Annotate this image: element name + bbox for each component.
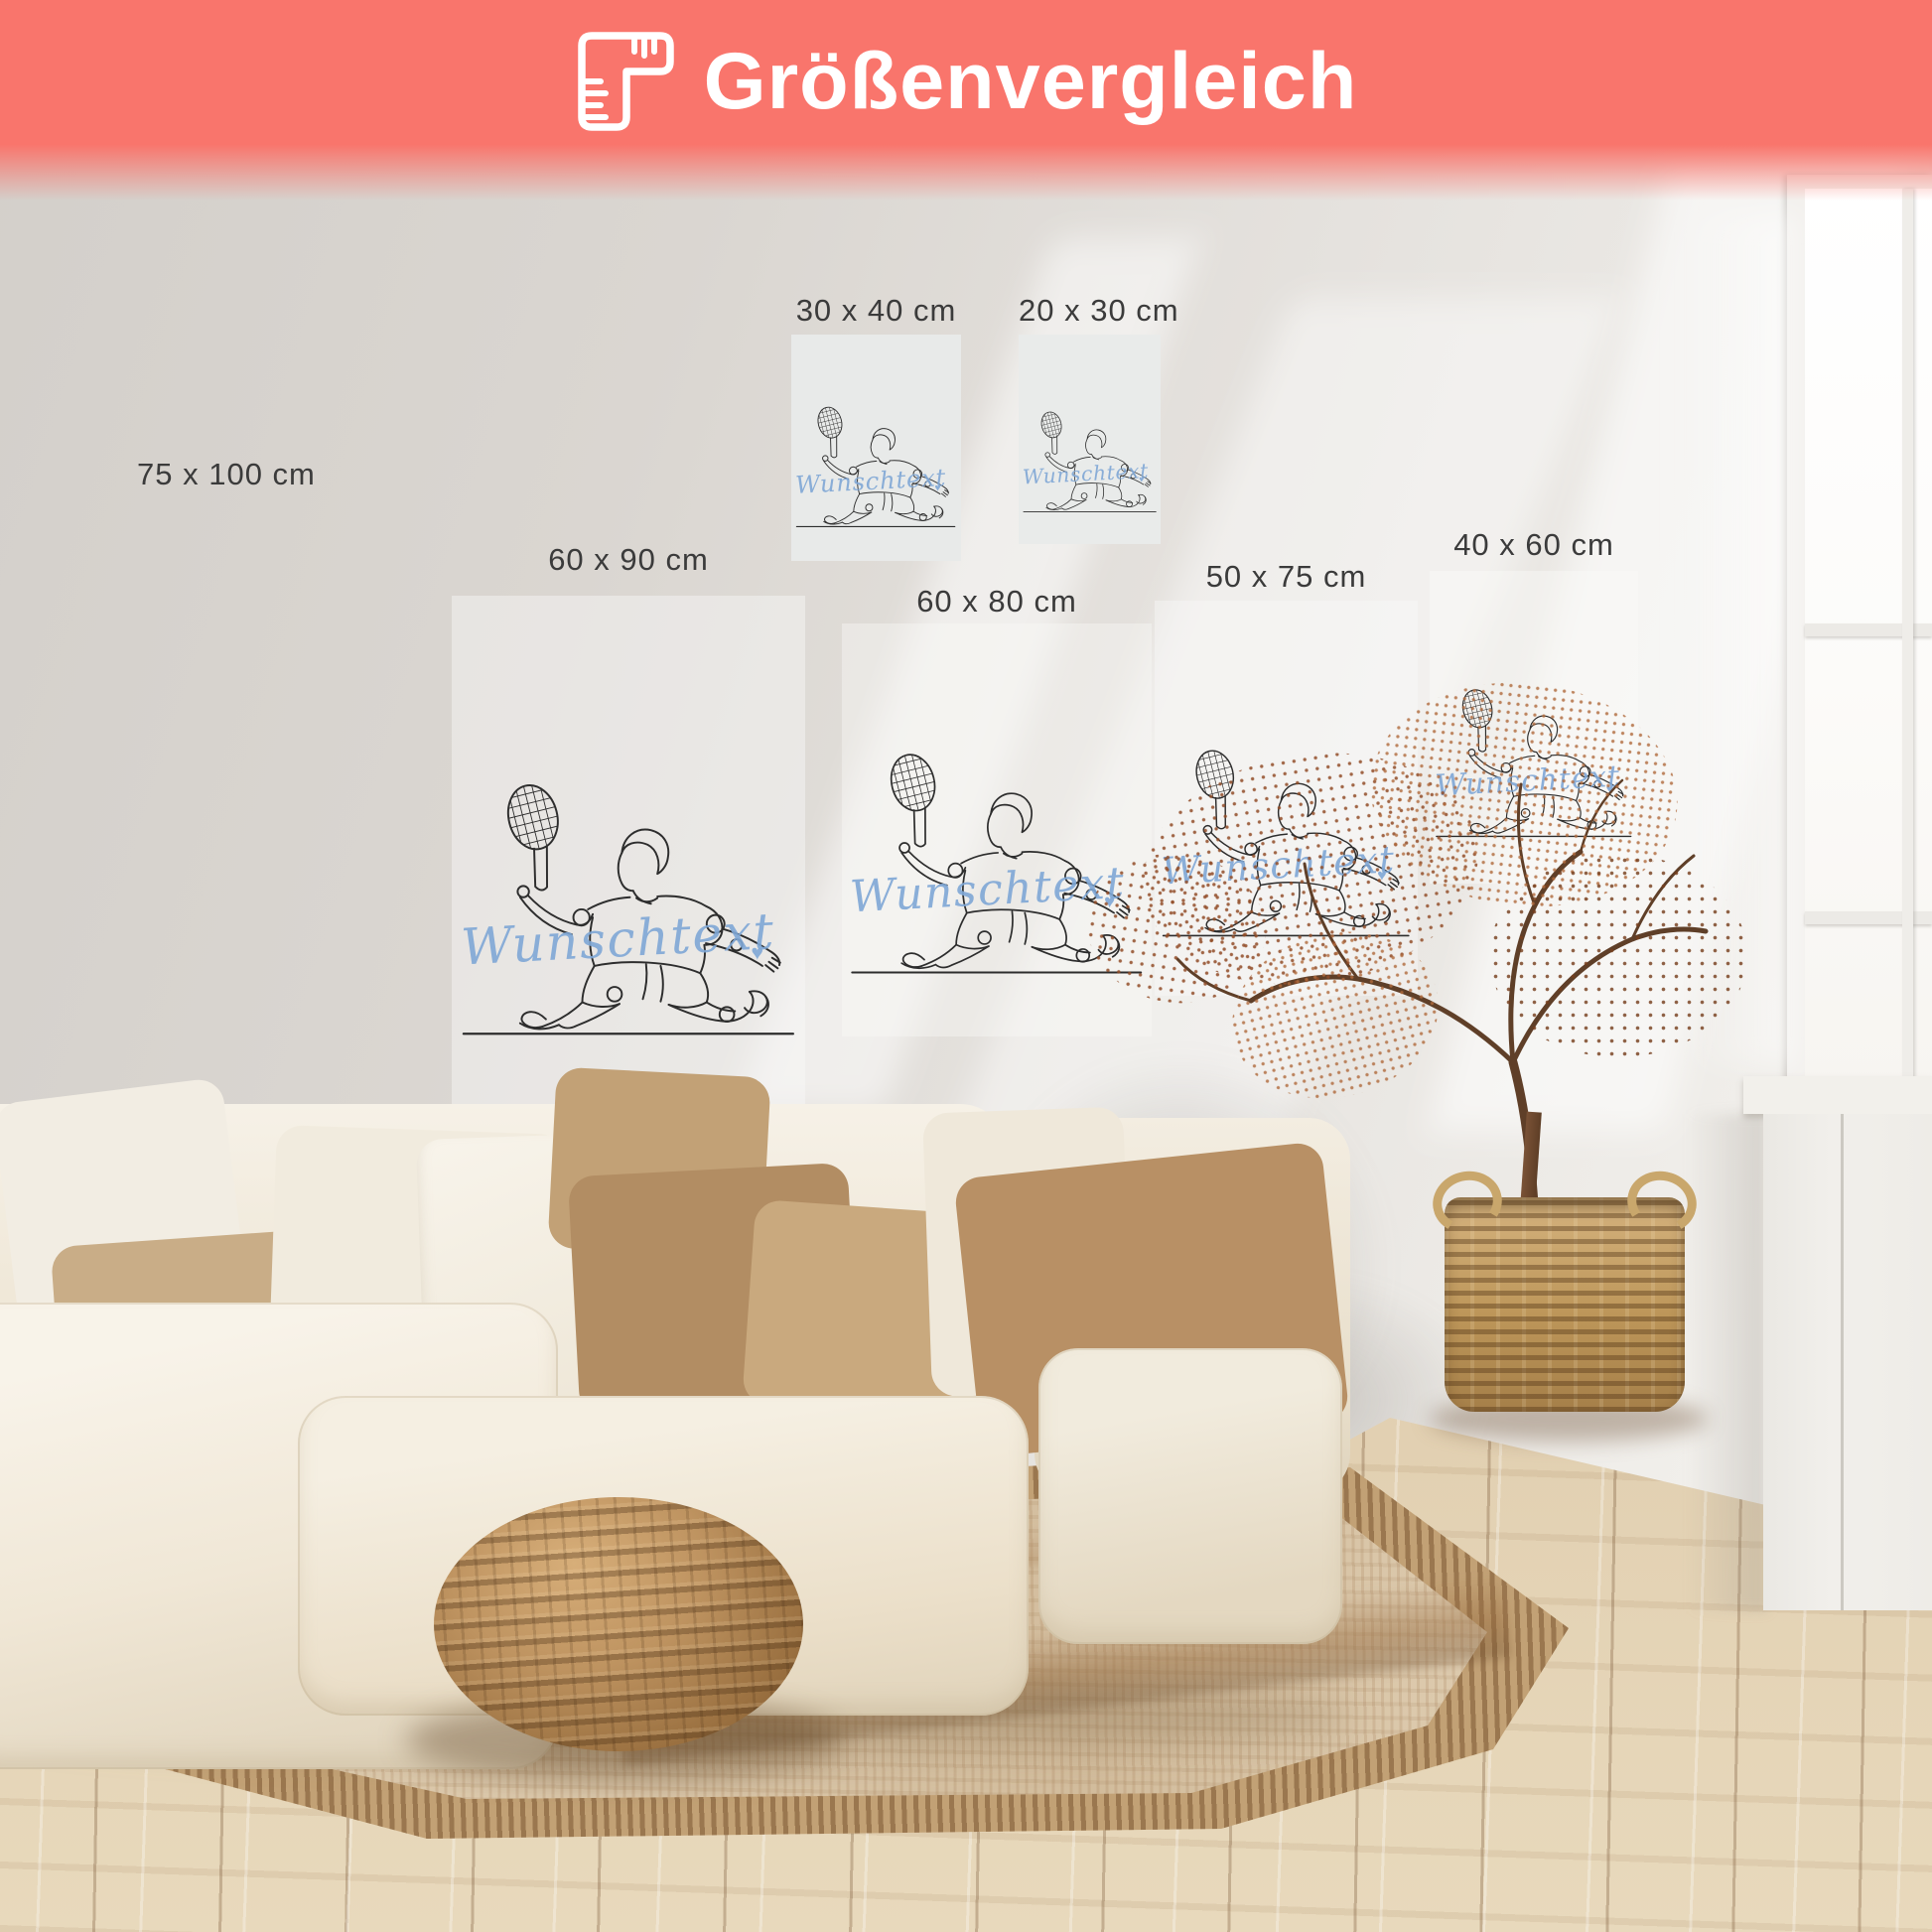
sideboard-cabinet [1763, 1114, 1932, 1610]
window-mullion [1902, 189, 1913, 1080]
wicker-basket-planter [1445, 1197, 1685, 1412]
banner-title: Größenvergleich [704, 36, 1358, 128]
size-label-60x90: 60 x 90 cm [452, 542, 805, 578]
window-sill [1743, 1076, 1932, 1114]
size-label-50x75: 50 x 75 cm [1155, 559, 1418, 595]
poster-artwork [794, 400, 957, 532]
poster-20x30: 20 x 30 cm [1019, 335, 1161, 544]
size-label-30x40: 30 x 40 cm [791, 293, 961, 329]
poster-30x40: 30 x 40 cm [791, 335, 961, 561]
banner-content: Größenvergleich [575, 28, 1358, 135]
size-label-20x30: 20 x 30 cm [1019, 293, 1161, 329]
poster-artwork [459, 770, 798, 1045]
size-label-60x80: 60 x 80 cm [842, 584, 1152, 620]
sofa-seat-cushion [1038, 1348, 1342, 1644]
wicker-pouf [434, 1497, 803, 1751]
window [1787, 175, 1932, 1094]
poster-60x90: 60 x 90 cm [452, 596, 805, 1112]
poster-artwork [1022, 406, 1158, 516]
size-label-75x100: 75 x 100 cm [137, 457, 336, 492]
ruler-icon [575, 28, 678, 135]
cabinet-seam [1841, 1114, 1844, 1610]
size-label-40x60: 40 x 60 cm [1430, 527, 1638, 563]
dried-foliage [1489, 854, 1747, 1057]
title-banner: Größenvergleich [0, 0, 1932, 201]
size-comparison-mockup: Wunschtext ♥ 75 x 100 cm 30 x 40 cm 20 x… [0, 0, 1932, 1932]
